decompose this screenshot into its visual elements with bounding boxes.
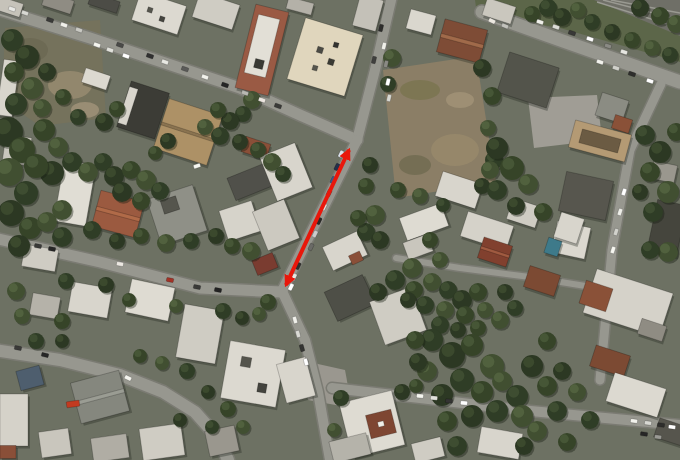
roof-detail [333,42,339,48]
building [0,394,30,449]
parked-car [416,394,423,399]
parked-car [668,425,675,430]
building [220,341,288,411]
roof-detail [312,65,318,71]
satellite-map-view [0,0,680,460]
satellite-imagery [0,0,680,460]
roof-detail [159,16,165,22]
parked-car [644,421,651,426]
roof-detail [257,383,267,393]
parked-car [657,423,664,428]
roof-detail [147,7,153,13]
parked-car [654,435,661,440]
parked-car [460,401,467,406]
roof-detail [377,421,384,427]
parked-car [630,419,637,424]
building [0,446,18,460]
parked-car [430,396,437,401]
roof-detail [316,46,323,53]
parked-car [640,432,647,437]
building [38,428,74,460]
roof-detail [240,356,252,368]
roof-detail [254,59,265,70]
roof-detail [327,58,334,65]
parked-car [445,399,452,404]
